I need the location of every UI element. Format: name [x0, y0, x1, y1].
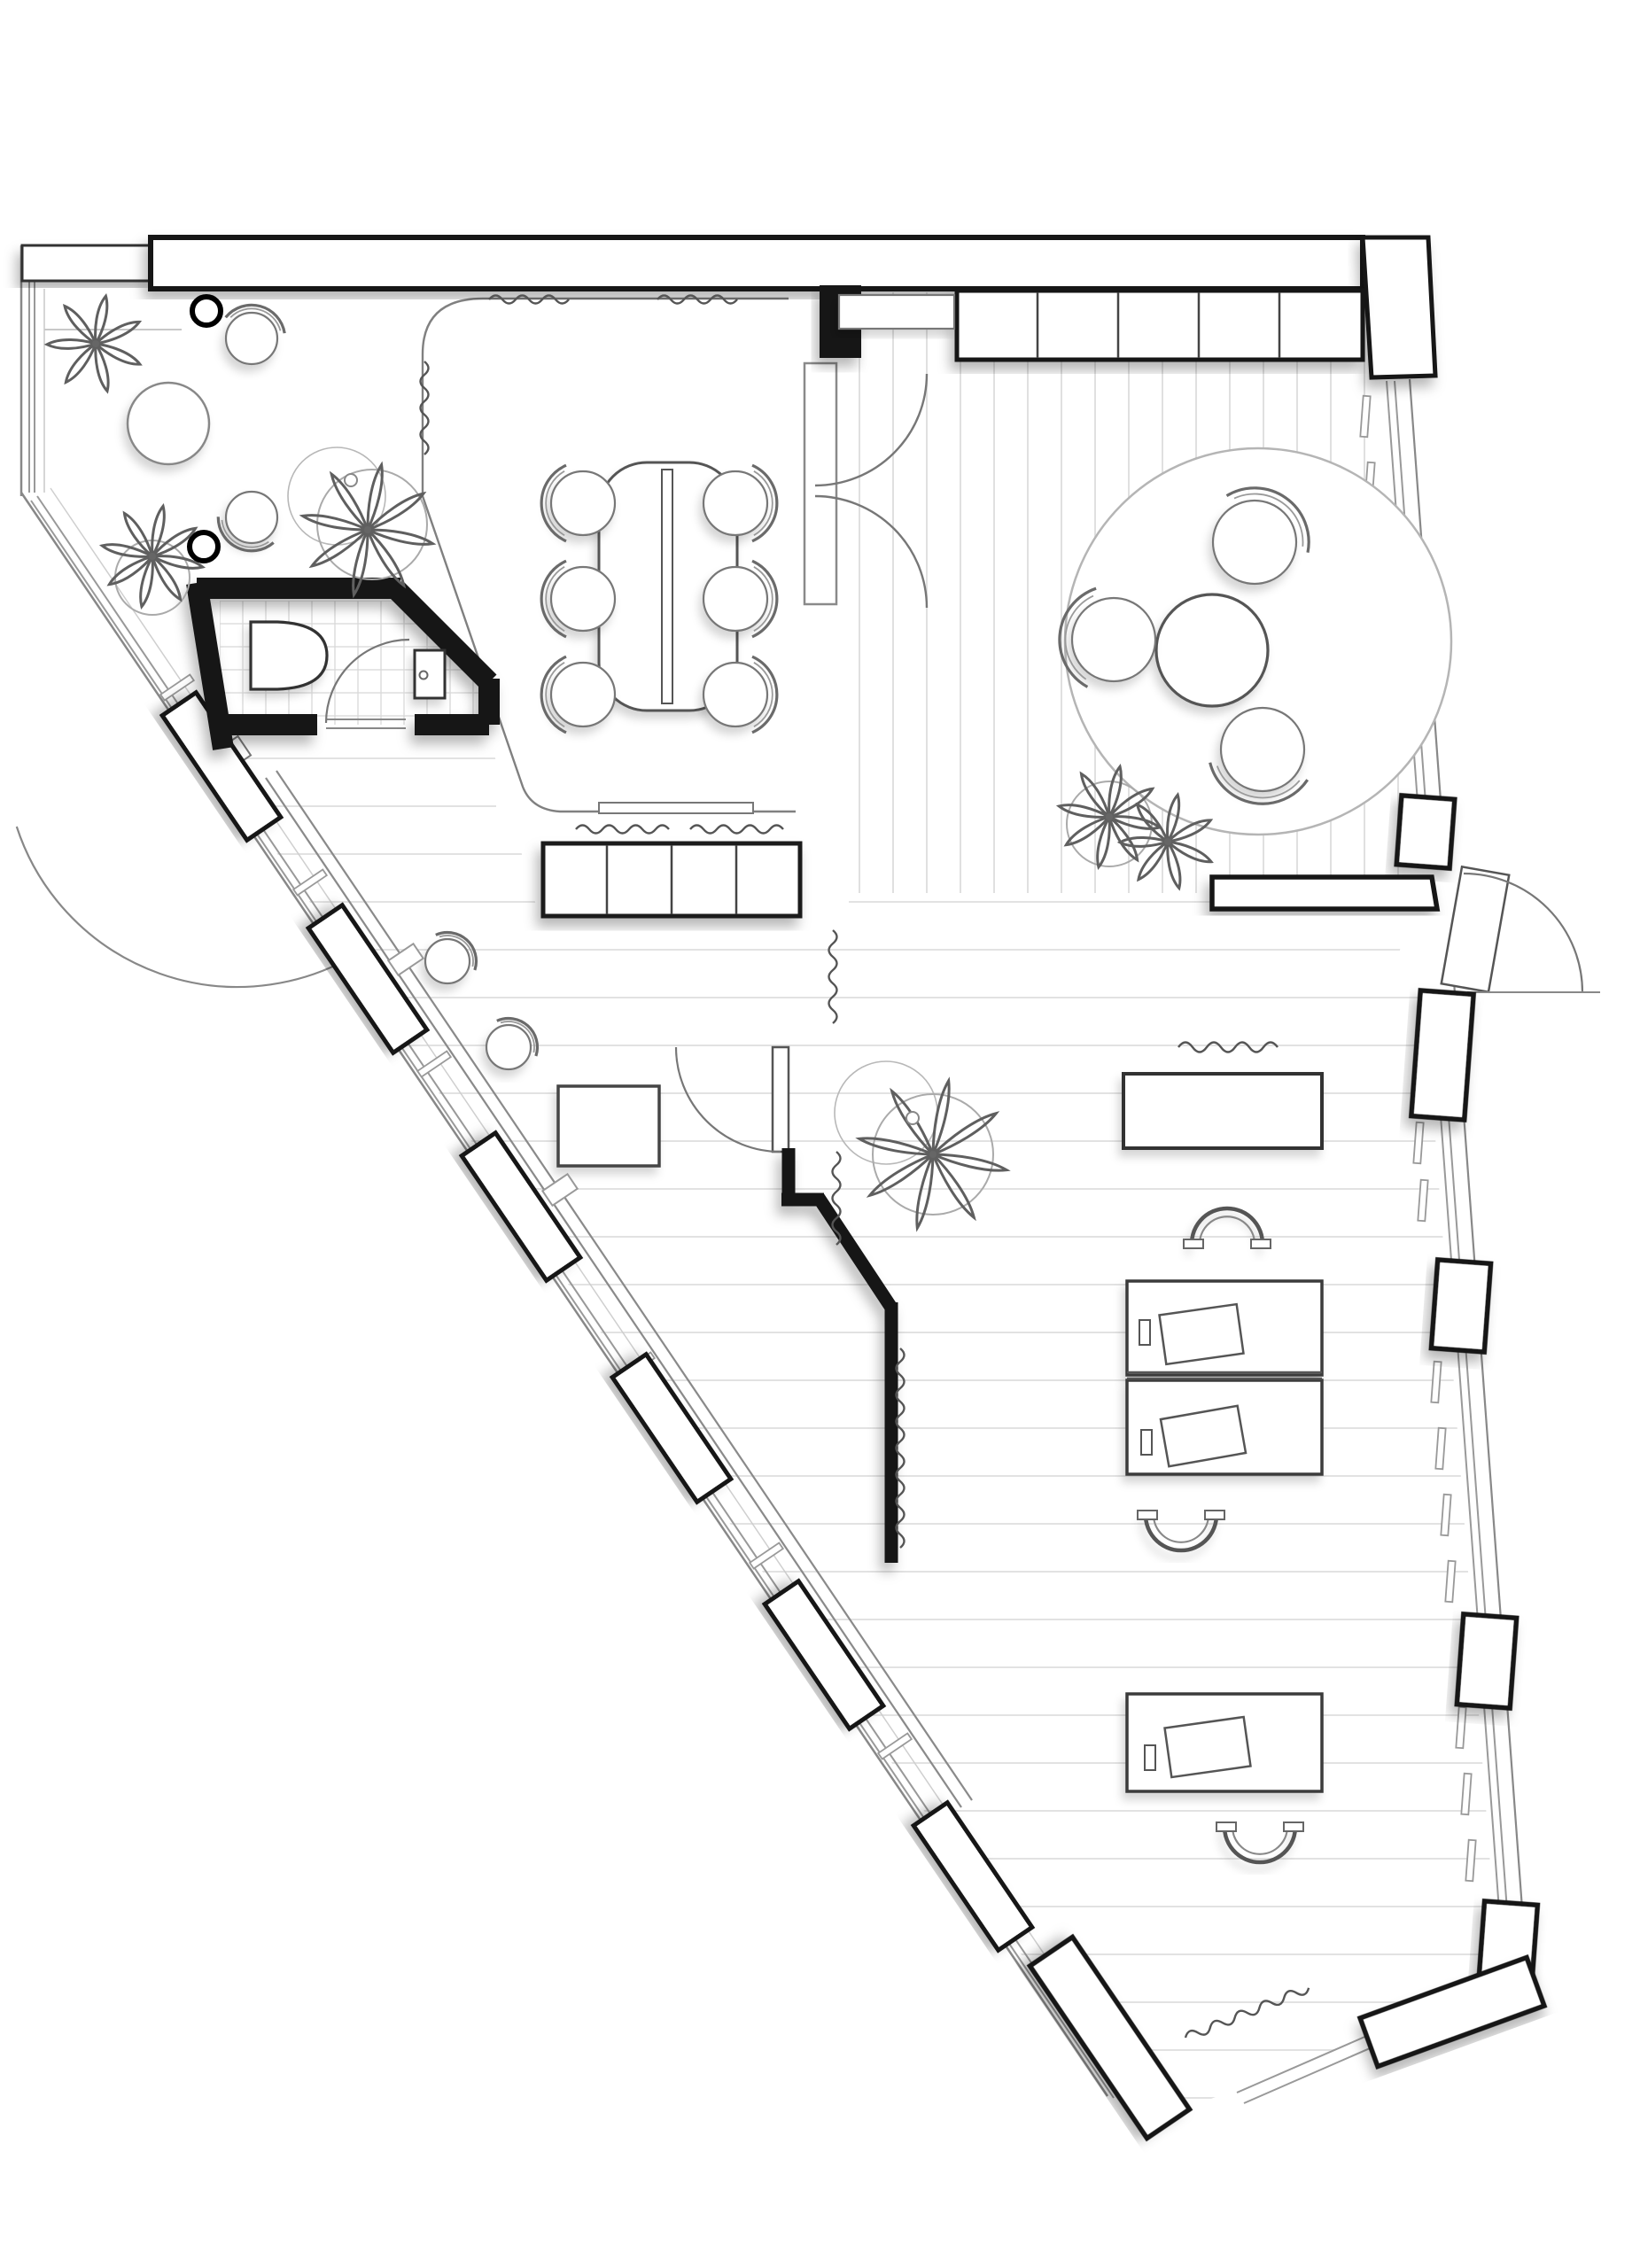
sideboard-plant-frond — [1178, 1043, 1278, 1052]
monitor-desk-1 — [1160, 1304, 1244, 1364]
entry-plant-large — [288, 447, 433, 595]
entry-plant-upper — [47, 295, 142, 392]
entry-lounge-chair-2 — [218, 492, 277, 551]
plan-root — [17, 237, 1600, 2138]
ledge-plate-2 — [542, 1174, 577, 1206]
phone-desk-2 — [1141, 1430, 1152, 1455]
lounge-office-wall — [1212, 877, 1437, 909]
top-right-corner-wall — [1363, 237, 1435, 377]
right-wall-pier-4 — [1457, 1614, 1516, 1708]
entry-door-swing — [17, 827, 364, 987]
entry-column-ring-2 — [190, 532, 218, 561]
corridor-square-table — [558, 1086, 659, 1166]
top-exterior-wall — [151, 237, 1363, 289]
bathroom-door-swing — [326, 640, 409, 723]
meeting-curtain-bottom-1 — [576, 826, 669, 834]
phone-desk-3 — [1145, 1745, 1155, 1770]
bathroom-sink-knob — [420, 672, 428, 680]
meeting-wall-bench — [599, 803, 753, 813]
right-wall-pier-2 — [1411, 990, 1473, 1120]
right-wall-pier-1 — [1396, 796, 1455, 868]
diagonal-pier-6 — [913, 1803, 1032, 1950]
right-wall-pier-3 — [1431, 1260, 1490, 1352]
entry-lounge-chair-1 — [226, 305, 285, 364]
entry-column-ring-1 — [192, 297, 221, 325]
meeting-curtain-top-2 — [657, 296, 737, 304]
office-door-leaf — [773, 1047, 789, 1152]
floor-plan-stage — [0, 0, 1640, 2268]
bottom-window-curtain — [1184, 1984, 1310, 2041]
meeting-table-center-leaf — [662, 470, 672, 703]
entry-plant-lower — [101, 505, 204, 615]
window-bar-stool-1 — [425, 933, 476, 983]
lounge-coffee-table — [1156, 594, 1268, 706]
corridor-z-wall — [781, 1148, 891, 1563]
office-chair-1 — [1184, 1208, 1271, 1249]
lounge-builtin-cabinets — [957, 291, 1363, 360]
office-center-plant — [835, 1061, 1007, 1229]
meeting-curtain-bottom-2 — [690, 826, 783, 834]
lounge-sideboard — [839, 295, 954, 329]
window-ledge-a — [266, 778, 961, 1807]
window-bar-stool-2 — [486, 1019, 537, 1069]
bottom-vertex-pier — [1030, 1938, 1189, 2139]
floor-plan-drawing — [0, 0, 1640, 2268]
office-sideboard — [1123, 1074, 1322, 1148]
monitor-desk-3 — [1165, 1717, 1251, 1777]
top-left-wall-stub — [22, 245, 153, 281]
toilet — [251, 622, 327, 689]
office-chair-3 — [1216, 1821, 1303, 1862]
office-door-swing — [676, 1047, 781, 1152]
corridor-curtain-1 — [829, 930, 837, 1023]
phone-desk-1 — [1139, 1320, 1150, 1345]
meeting-curtain-top-1 — [489, 296, 569, 304]
entry-round-pouf — [128, 383, 209, 464]
ledge-plate-1 — [388, 944, 423, 975]
office-chair-2 — [1138, 1510, 1224, 1550]
